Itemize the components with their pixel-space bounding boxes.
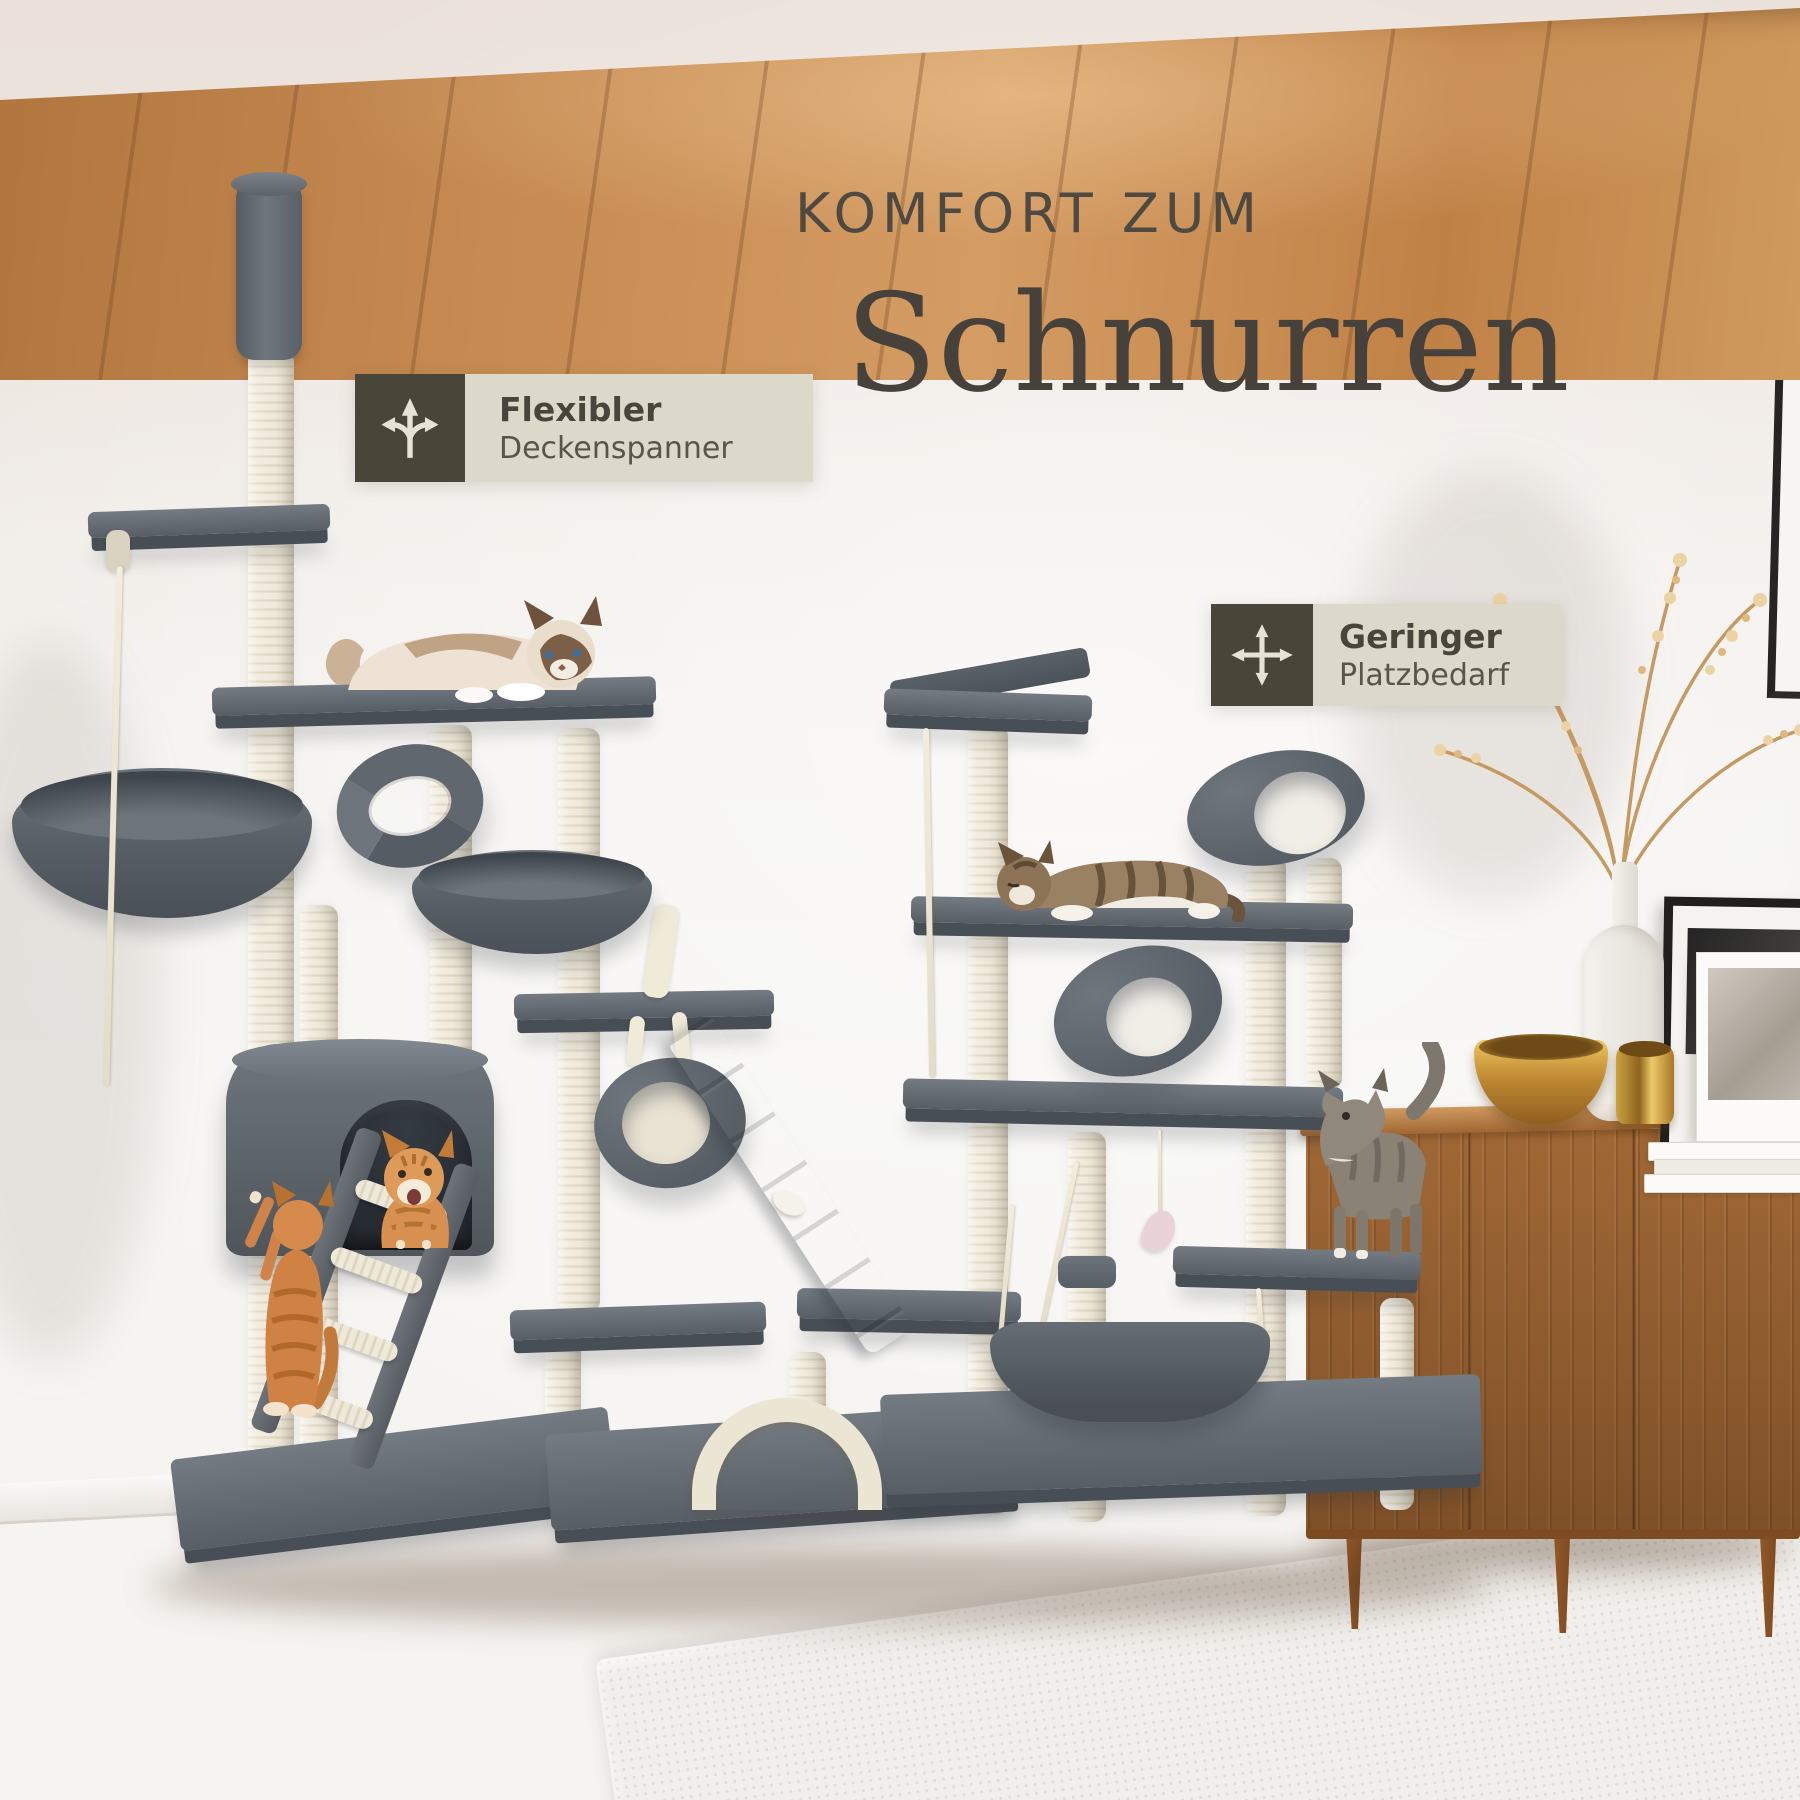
plush-post-collar bbox=[1058, 1256, 1116, 1288]
badge-flexibler-deckenspanner: Flexibler Deckenspanner bbox=[355, 374, 813, 482]
framed-photo bbox=[1708, 968, 1800, 1100]
gold-cup bbox=[1616, 1046, 1674, 1124]
cat-tabby-lying bbox=[980, 836, 1250, 922]
ceiling-tensioner-tube bbox=[236, 180, 302, 360]
badge-icon-box bbox=[355, 374, 465, 482]
title-headline: Schnurren bbox=[845, 276, 1570, 411]
badge-icon-box bbox=[1211, 604, 1313, 706]
scratching-post bbox=[558, 728, 600, 1313]
picture-frame-white bbox=[1696, 952, 1800, 1142]
vase-neck bbox=[1612, 862, 1638, 934]
expand-arrows-icon bbox=[1230, 623, 1294, 687]
cat-orange-kitten-in-condo bbox=[352, 1128, 472, 1250]
badge-label: Flexibler Deckenspanner bbox=[465, 374, 813, 482]
flex-directions-arrow-icon bbox=[376, 394, 444, 462]
toy-string bbox=[1158, 1130, 1161, 1216]
badge-label: Geringer Platzbedarf bbox=[1313, 604, 1561, 706]
platform-middle bbox=[514, 990, 774, 1021]
badge-geringer-platzbedarf: Geringer Platzbedarf bbox=[1211, 604, 1561, 706]
badge-label-bold: Geringer bbox=[1339, 616, 1561, 657]
base-shadow bbox=[150, 1545, 1490, 1625]
title-kicker: KOMFORT ZUM bbox=[795, 182, 1263, 245]
badge-label-text: Deckenspanner bbox=[499, 430, 813, 468]
book bbox=[1644, 1174, 1800, 1193]
cat-orange-stretching bbox=[236, 1165, 346, 1417]
badge-label-text: Platzbedarf bbox=[1339, 657, 1561, 695]
badge-label-bold: Flexibler bbox=[499, 389, 813, 430]
product-marketing-image: KOMFORT ZUM Schnurren Flexibler Deckensp… bbox=[0, 0, 1800, 1800]
cat-ragdoll-lying bbox=[318, 588, 618, 708]
dried-branches bbox=[1380, 540, 1800, 900]
cat-gray-standing bbox=[1268, 1042, 1458, 1262]
